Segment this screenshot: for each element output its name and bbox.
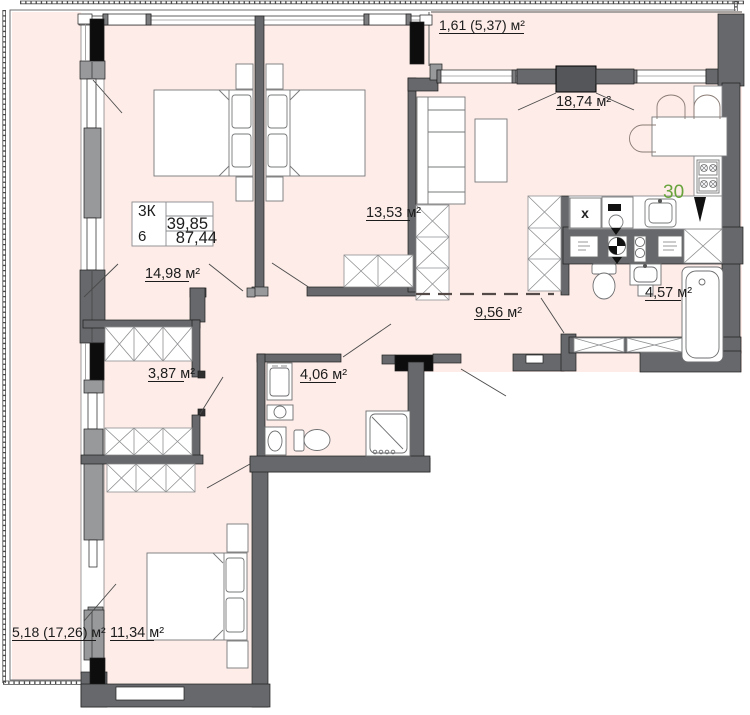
svg-text:13,53 м²: 13,53 м² [366,205,421,221]
svg-text:4,06 м²: 4,06 м² [300,367,347,383]
svg-text:87,44: 87,44 [176,229,217,247]
svg-text:3К: 3К [138,203,156,220]
svg-text:3,87 м²: 3,87 м² [148,366,195,382]
svg-text:4,57 м²: 4,57 м² [645,285,692,301]
svg-text:11,34 м²: 11,34 м² [110,625,164,641]
svg-text:9,56 м²: 9,56 м² [475,305,522,321]
svg-text:6: 6 [138,228,146,245]
svg-text:5,18 (17,26) м²: 5,18 (17,26) м² [12,624,106,640]
svg-text:18,74 м²: 18,74 м² [556,94,611,110]
svg-text:30: 30 [663,182,684,203]
svg-text:x: x [581,205,589,221]
svg-text:14,98 м²: 14,98 м² [145,266,200,282]
svg-text:1,61 (5,37) м²: 1,61 (5,37) м² [439,17,525,33]
